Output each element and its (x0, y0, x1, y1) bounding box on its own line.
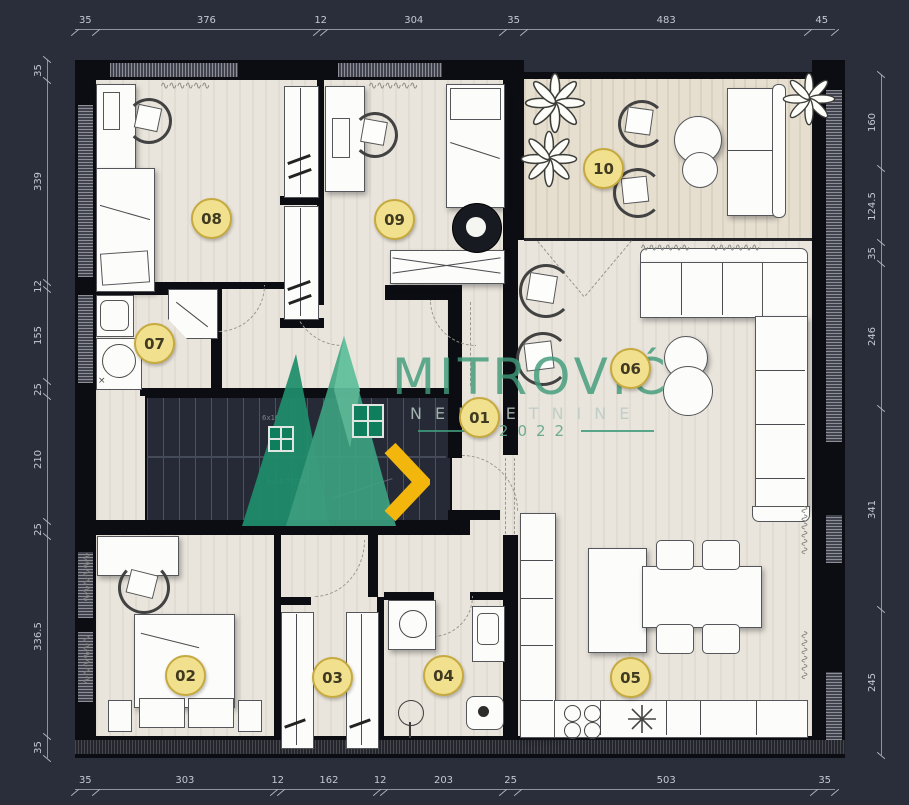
corner-sofa-corner (762, 262, 808, 318)
sofa-cushion-line (728, 150, 773, 151)
chair-cushion (526, 272, 558, 304)
dimension-label: 376 (197, 15, 216, 26)
dimension-label: 483 (657, 15, 676, 26)
dimension-label: 203 (434, 775, 453, 786)
nightstand (108, 700, 132, 732)
dimension-label: 45 (815, 15, 828, 26)
nightstand (238, 700, 262, 732)
dimension-segment: 246 (864, 264, 882, 409)
room-number: 10 (593, 160, 614, 178)
window-right-2 (826, 515, 842, 563)
window-right-long (826, 90, 842, 442)
cabinet-line (521, 645, 553, 646)
dimension-label: 210 (33, 450, 44, 469)
laptop (332, 118, 350, 158)
wall-room04-kitchen (503, 535, 518, 736)
cabinet-line (521, 598, 553, 599)
curtain-icon: ∿∿∿∿∿∿ (710, 244, 759, 252)
dimension-segment: 376 (96, 12, 318, 30)
wall-room03-room04-upper (368, 520, 378, 597)
wall-room09-bottom (385, 285, 462, 300)
counter-line (756, 701, 757, 735)
stove-burner (584, 705, 601, 722)
dimension-segment: 210 (30, 397, 48, 522)
dimension-segment: 483 (524, 12, 809, 30)
room-badge-05: 05 (610, 657, 651, 698)
toilet-bowl (102, 344, 136, 378)
dimension-label: 35 (33, 741, 44, 754)
laptop (103, 92, 120, 130)
dining-chair (702, 624, 740, 654)
wardrobe (284, 86, 319, 198)
room-badge-03: 03 (312, 657, 353, 698)
sofa-cushion-line (681, 263, 682, 315)
dimension-label: 339 (33, 172, 44, 191)
corner-sofa-seat-right (755, 316, 808, 510)
dimension-label: 35 (79, 15, 92, 26)
dimension-segment: 155 (30, 290, 48, 382)
dimension-segment: 503 (518, 772, 814, 790)
palm-plant-icon (524, 72, 586, 134)
room-number: 05 (620, 669, 641, 687)
cabinet-line (521, 700, 553, 701)
floor-plan: 35376123043548345 3530312162122032550335… (0, 0, 909, 805)
room-badge-08: 08 (191, 198, 232, 239)
dimension-segment: 35 (75, 772, 96, 790)
window-right-3 (826, 672, 842, 740)
sofa-cushion-line (756, 370, 805, 371)
sofa-cushion-line (722, 263, 723, 315)
dimension-segment: 124.5 (864, 169, 882, 243)
palm-plant-icon (520, 130, 578, 188)
kitchen-island (588, 548, 647, 653)
dimension-label: 303 (175, 775, 194, 786)
dimension-label: 155 (33, 326, 44, 345)
year-line (581, 430, 654, 432)
closet-rail (296, 614, 297, 745)
closet (281, 612, 314, 749)
room-badge-01: 01 (459, 397, 500, 438)
logo-window-icon (268, 426, 294, 452)
wall-bottom-texture (75, 740, 845, 754)
dimension-segment: 35 (30, 737, 48, 758)
pillow (139, 698, 185, 728)
window-left-1 (78, 105, 93, 277)
wall-room02-room03 (274, 535, 281, 736)
closet-rail (361, 614, 362, 745)
dimension-segment: 203 (384, 772, 504, 790)
dimension-segment: 160 (864, 75, 882, 169)
counter-line (666, 701, 667, 735)
dining-chair (702, 540, 740, 570)
watermark-subtitle: NEKRETNINE (410, 404, 642, 423)
floor-drain-icon: × (98, 376, 106, 386)
terrace-sofa (727, 88, 776, 216)
pillow (188, 698, 234, 728)
dimension-rail-left: 35339121552521025336.535 (30, 60, 48, 758)
round-table (682, 152, 718, 188)
sofa-cushion-line (756, 424, 805, 425)
dimension-label: 35 (818, 775, 831, 786)
dimension-segment: 304 (324, 12, 503, 30)
dimension-label: 341 (867, 500, 878, 519)
dimension-label: 12 (374, 775, 387, 786)
room-badge-09: 09 (374, 199, 415, 240)
dimension-label: 12 (33, 280, 44, 293)
room-badge-02: 02 (165, 655, 206, 696)
dimension-segment: 12 (274, 772, 281, 790)
stove-burner (584, 722, 601, 739)
pillow (450, 88, 501, 120)
wall-entry (448, 510, 500, 520)
chair-cushion (134, 104, 162, 132)
dimension-label: 25 (33, 523, 44, 536)
dimension-segment: 25 (503, 772, 518, 790)
stove-burner (564, 705, 581, 722)
tall-cabinets (520, 513, 556, 738)
wall-room04-top-b (470, 592, 503, 600)
dimension-label: 304 (404, 15, 423, 26)
dimension-rail-right: 160124.535246341245 (864, 75, 882, 755)
stove-burner (564, 722, 581, 739)
logo-window-icon (352, 404, 384, 438)
wall-room04-top-a (384, 592, 434, 600)
watermark-year-row: 2022 (418, 422, 654, 440)
curtain-icon: ∿∿∿∿∿∿ (800, 630, 808, 679)
chair-cushion (360, 118, 388, 146)
bean-bag-center (466, 217, 486, 237)
dimension-label: 12 (314, 15, 327, 26)
dimension-label: 25 (504, 775, 517, 786)
dimension-label: 162 (319, 775, 338, 786)
dimension-segment: 339 (30, 81, 48, 283)
entrance-chevron-icon (384, 440, 430, 524)
curtain-icon: ∿∿∿∿∿∿ (160, 82, 209, 90)
chair-cushion (621, 176, 650, 205)
room-boundary-dash (514, 458, 515, 534)
room-number: 02 (175, 667, 196, 685)
counter-line (700, 701, 701, 735)
room-badge-06: 06 (610, 348, 651, 389)
dimension-label: 35 (867, 247, 878, 260)
room-boundary-dash (505, 458, 506, 534)
curtain-icon: ∿∿∿∿∿∿ (800, 505, 808, 554)
pillow (100, 250, 150, 285)
curtain-icon: ∿∿∿∿∿∿ (82, 634, 90, 683)
room-badge-10: 10 (583, 148, 624, 189)
dimension-segment: 245 (864, 610, 882, 755)
dimension-segment: 45 (808, 12, 835, 30)
shower-head (398, 700, 424, 726)
dimension-label: 35 (33, 64, 44, 77)
room-number: 04 (433, 667, 454, 685)
dimension-label: 246 (867, 327, 878, 346)
dimension-rail-top: 35376123043548345 (75, 12, 835, 30)
curtain-icon: ∿∿∿∿∿∿ (368, 82, 417, 90)
dimension-label: 160 (867, 113, 878, 132)
window-room08 (110, 63, 238, 77)
sink-basin (100, 300, 129, 331)
dimension-label: 245 (867, 673, 878, 692)
window-room09 (338, 63, 442, 77)
washing-machine-drum (399, 610, 427, 638)
dimension-segment: 162 (281, 772, 376, 790)
dimension-label: 336.5 (33, 623, 44, 652)
corner-sofa-seat (640, 262, 764, 318)
palm-plant-icon (782, 72, 836, 126)
dimension-segment: 336.5 (30, 537, 48, 737)
dimension-segment: 12 (377, 772, 384, 790)
dimension-label: 35 (79, 775, 92, 786)
curtain-icon: ∿∿∿∿∿∿ (640, 244, 689, 252)
dining-table (642, 566, 762, 628)
wardrobe-rail (300, 88, 301, 194)
chair-cushion (624, 106, 653, 135)
wall-room03-top (281, 597, 311, 605)
sofa-cushion-line (756, 478, 805, 479)
dimension-segment: 35 (75, 12, 96, 30)
dimension-label: 124.5 (867, 192, 878, 221)
room-number: 07 (144, 335, 165, 353)
shower-stem (409, 722, 411, 738)
dimension-label: 25 (33, 383, 44, 396)
dimension-segment: 35 (503, 12, 524, 30)
watermark-year: 2022 (499, 422, 573, 440)
room-badge-07: 07 (134, 323, 175, 364)
dresser (390, 250, 505, 284)
dining-chair (656, 624, 694, 654)
dimension-label: 12 (271, 775, 284, 786)
room-number: 01 (469, 409, 490, 427)
sink-basin (477, 613, 499, 645)
dimension-label: 35 (507, 15, 520, 26)
dimension-segment: 303 (96, 772, 275, 790)
dimension-segment: 341 (864, 409, 882, 610)
window-left-2 (78, 295, 93, 383)
curtain-icon: ∿∿∿∿∿∿ (82, 552, 90, 601)
dimension-rail-bottom: 3530312162122032550335 (75, 772, 835, 790)
room-number: 09 (384, 211, 405, 229)
cabinet-line (521, 560, 553, 561)
room-number: 08 (201, 210, 222, 228)
room-number: 03 (322, 669, 343, 687)
dining-chair (656, 540, 694, 570)
dimension-segment: 35 (814, 772, 835, 790)
dimension-label: 503 (657, 775, 676, 786)
dimension-segment: 12 (317, 12, 324, 30)
toilet-drain (478, 706, 489, 717)
room-badge-04: 04 (423, 655, 464, 696)
room-number: 06 (620, 360, 641, 378)
kitchen-sink-icon (624, 702, 660, 736)
